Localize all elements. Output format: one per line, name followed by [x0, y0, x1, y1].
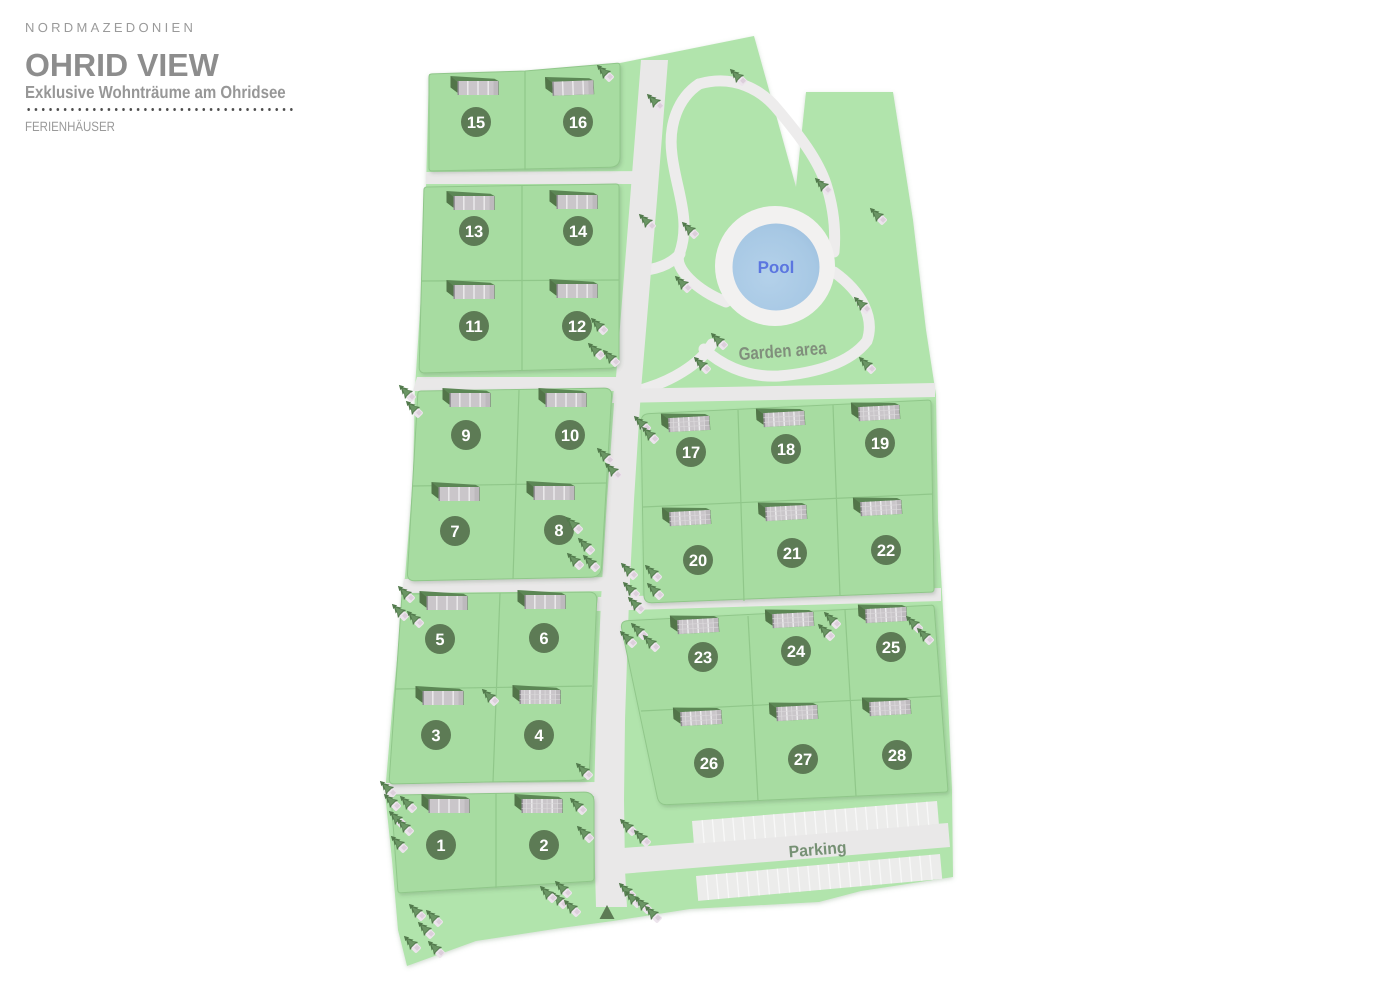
svg-text:7: 7: [450, 523, 459, 541]
svg-text:24: 24: [787, 643, 806, 661]
svg-text:1: 1: [436, 837, 445, 855]
svg-text:5: 5: [435, 631, 444, 649]
svg-text:10: 10: [561, 427, 579, 445]
svg-text:18: 18: [777, 441, 795, 459]
svg-text:Pool: Pool: [758, 258, 795, 277]
svg-text:12: 12: [568, 318, 586, 336]
svg-text:4: 4: [534, 727, 544, 745]
svg-text:23: 23: [694, 649, 712, 667]
svg-text:26: 26: [700, 755, 718, 773]
svg-text:6: 6: [539, 630, 548, 648]
svg-text:3: 3: [431, 727, 440, 745]
svg-text:14: 14: [569, 223, 588, 241]
svg-text:17: 17: [682, 444, 700, 462]
svg-text:27: 27: [794, 751, 812, 769]
svg-text:11: 11: [465, 318, 482, 336]
svg-text:19: 19: [871, 435, 889, 453]
svg-text:9: 9: [461, 427, 470, 445]
svg-text:16: 16: [569, 114, 587, 132]
svg-text:13: 13: [465, 223, 483, 241]
svg-text:22: 22: [877, 542, 895, 560]
svg-text:15: 15: [467, 114, 485, 132]
svg-text:20: 20: [689, 552, 707, 570]
svg-text:2: 2: [539, 837, 548, 855]
svg-text:8: 8: [554, 522, 563, 540]
svg-text:21: 21: [783, 545, 801, 563]
svg-text:25: 25: [882, 639, 900, 657]
svg-text:28: 28: [888, 747, 906, 765]
